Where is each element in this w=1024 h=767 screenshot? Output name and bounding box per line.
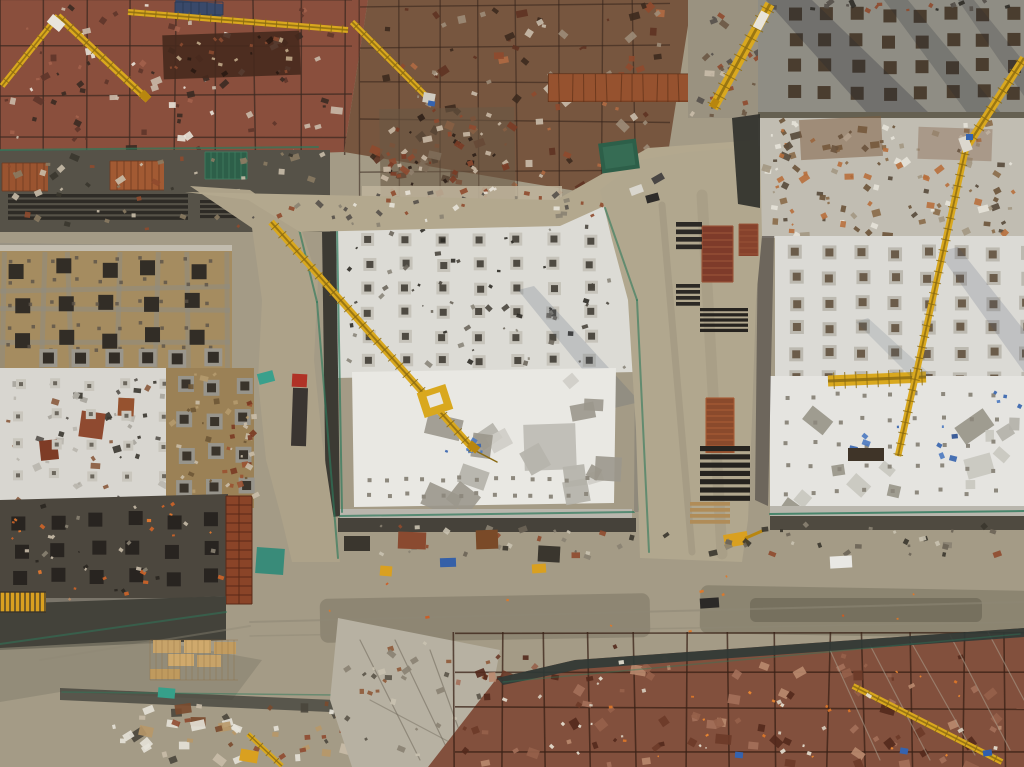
lumber-stack-5	[197, 655, 221, 667]
crane-right-blue-block	[966, 134, 973, 140]
yellow-loader-2	[532, 564, 547, 574]
yellow-loader-1	[380, 565, 393, 576]
laydown-bins-2	[538, 545, 561, 562]
green-shed-road-roof	[603, 143, 636, 169]
laydown-rust-box	[398, 532, 427, 550]
scene-canvas	[0, 0, 1024, 767]
laydown-timber	[476, 530, 499, 550]
lumber-stack-1	[153, 640, 181, 653]
lumber-stack-4	[168, 654, 194, 666]
lumber-stack-6	[150, 669, 180, 679]
teal-tarp-stack	[255, 547, 285, 575]
blue-car	[440, 558, 456, 568]
lumber-stack-2	[184, 640, 211, 653]
aerial-construction-site-photo	[0, 0, 1024, 767]
wet-road-right-core	[750, 598, 982, 622]
dark-car-road	[700, 597, 720, 608]
right-debris-patch-1	[799, 116, 883, 160]
white-pickup	[830, 555, 853, 568]
right-slab-opening	[848, 448, 884, 461]
truck-trailer	[291, 388, 308, 446]
teal-excavator-2	[158, 687, 176, 698]
truck-cab	[292, 374, 308, 388]
lumber-stack-3	[214, 642, 236, 654]
topleft-dark-modules	[162, 31, 300, 80]
left-dark-deck	[0, 494, 228, 606]
deck-blue-tarp-2	[983, 749, 993, 756]
rust-shed-c	[706, 398, 734, 453]
laydown-bins-1	[344, 536, 370, 551]
right-debris-patch-2	[917, 127, 992, 162]
yellow-barrier-stack	[0, 592, 46, 612]
deck-blue-tarp-3	[735, 752, 743, 759]
left-tan-parapet	[0, 245, 232, 251]
rust-shed-b	[739, 224, 758, 256]
center-lower-gray-patch	[523, 423, 577, 471]
